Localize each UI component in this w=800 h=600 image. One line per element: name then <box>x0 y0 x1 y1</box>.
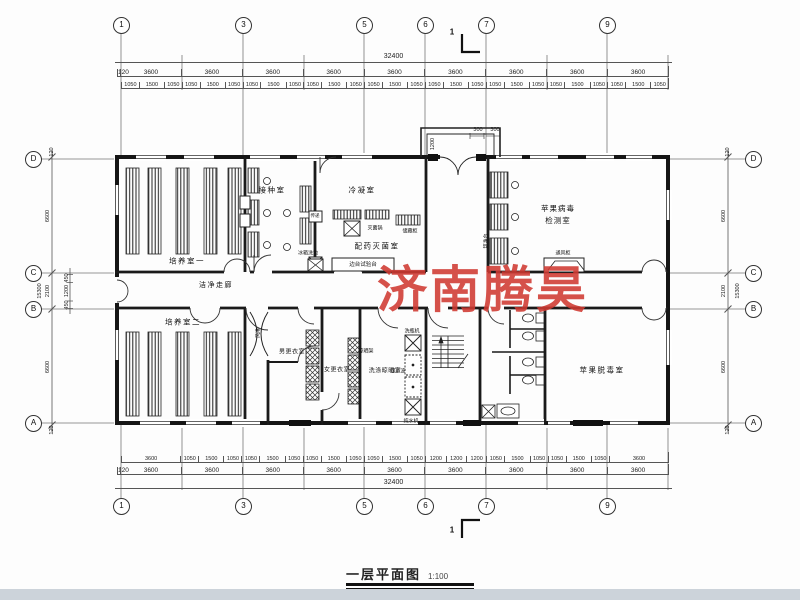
right-dim-ba: 6600 <box>721 361 727 373</box>
equip-label-clean-bench: 超净台 <box>483 233 490 248</box>
dimension-value: 3600 <box>120 69 181 76</box>
dimension-value: 3600 <box>364 69 425 76</box>
stairs <box>432 336 468 368</box>
dimension-value: 1050 <box>286 82 304 88</box>
grid-bubble-left-B: B <box>25 301 42 318</box>
dimension-value: 3600 <box>181 69 242 76</box>
dimension-value: 1050 <box>486 82 504 88</box>
dimension-value: 1050 <box>225 82 243 88</box>
equip-label-air-shower: 风淋 <box>255 328 262 338</box>
dimension-value: 1050 <box>650 82 668 88</box>
dimension-value: 1050 <box>548 456 566 462</box>
dimension-value: 1500 <box>564 82 589 88</box>
grid-bubble-top-1: 1 <box>113 17 130 34</box>
top-overall-dim: 32400 <box>115 52 672 63</box>
right-dim-edge-bottom: 120 <box>725 425 731 434</box>
dimension-value: 1500 <box>443 82 468 88</box>
right-dim-overall: 15300 <box>735 283 741 298</box>
grid-bubble-bottom-1: 1 <box>113 498 130 515</box>
floorplan-page: 1 3 5 6 7 9 1 3 5 6 7 9 D C B A D C B A … <box>0 0 800 600</box>
left-dim-detail-450a: 450 <box>64 273 70 282</box>
dimension-value: 1500 <box>504 456 529 462</box>
dimension-value: 1050 <box>243 82 261 88</box>
dimension-value: 3600 <box>303 69 364 76</box>
grid-bubble-right-C: C <box>745 265 762 282</box>
dimension-value: 3600 <box>364 467 425 474</box>
washing-equipment <box>405 335 421 415</box>
dimension-value: 1500 <box>566 456 591 462</box>
title-underline-thick <box>346 583 474 586</box>
room-label-corridor: 洁净走廊 <box>199 280 233 290</box>
top-bay-dims: 120360036003600360036003600360036003600 <box>117 66 669 77</box>
drawing-title: 一层平面图 <box>346 564 421 583</box>
right-dim-cb: 2100 <box>721 285 727 297</box>
left-dim-detail-1200: 1200 <box>64 285 70 297</box>
dimension-value: 1050 <box>303 82 321 88</box>
grid-bubble-left-C: C <box>25 265 42 282</box>
dimension-value: 1050 <box>346 82 364 88</box>
left-dim-detail-450b: 450 <box>64 300 70 309</box>
dimension-value: 3600 <box>607 467 668 474</box>
dimension-value: 1050 <box>182 82 200 88</box>
dimension-value: 1050 <box>223 456 241 462</box>
room-label-virus-test-line2: 检测室 <box>541 215 575 227</box>
vestibule-depth-dim: 1200 <box>430 138 436 150</box>
room-label-men-changing: 男更衣室 <box>279 347 305 356</box>
dimension-value: 3600 <box>121 456 180 462</box>
room-label-women-changing: 女更衣室 <box>324 365 350 374</box>
dimension-value: 3600 <box>609 456 668 462</box>
grid-bubble-top-7: 7 <box>478 17 495 34</box>
room-label-culture2: 培养室二 <box>165 317 201 328</box>
page-footer-bar <box>0 589 800 600</box>
dimension-value: 1500 <box>139 82 164 88</box>
dimension-value: 1500 <box>382 456 407 462</box>
dimension-value: 1500 <box>321 456 346 462</box>
dimension-value: 1500 <box>382 82 407 88</box>
room-label-detox: 苹果脱毒室 <box>580 365 625 376</box>
equip-label-ultrasonic: 超声波 <box>390 368 405 375</box>
dimension-value: 1050 <box>346 456 364 462</box>
equip-label-cabinet: 储藏柜 <box>402 228 417 235</box>
watermark-text: 济南腾昊 <box>377 250 589 322</box>
dimension-value: 1500 <box>504 82 529 88</box>
grid-bubble-top-5: 5 <box>356 17 373 34</box>
dimension-value: 1050 <box>607 82 625 88</box>
left-dim-dc: 6600 <box>45 210 51 222</box>
grid-bubble-right-A: A <box>745 415 762 432</box>
grid-bubble-bottom-7: 7 <box>478 498 495 515</box>
dimension-value: 3600 <box>485 69 546 76</box>
equip-label-sterilizer: 灭菌锅 <box>367 225 382 232</box>
dimension-value: 1050 <box>486 456 504 462</box>
room-label-culture1: 培养室一 <box>169 256 205 267</box>
dimension-value: 1050 <box>591 456 609 462</box>
dimension-value: 3600 <box>607 69 668 76</box>
dimension-value: 1200 <box>425 456 445 462</box>
dimension-value: 1500 <box>625 82 650 88</box>
dimension-value: 1050 <box>407 456 425 462</box>
dimension-value: 3600 <box>120 467 181 474</box>
dimension-value: 3600 <box>181 467 242 474</box>
dimension-value: 1050 <box>590 82 608 88</box>
grid-bubble-right-D: D <box>745 151 762 168</box>
dimension-value: 1050 <box>303 456 321 462</box>
dimension-value: 1500 <box>198 456 223 462</box>
room-label-condensation: 冷凝室 <box>349 185 376 196</box>
equip-label-pass-window: 传递 <box>311 213 320 219</box>
dimension-value: 3600 <box>485 467 546 474</box>
dimension-value: 1050 <box>547 82 565 88</box>
dimension-value: 1050 <box>364 82 382 88</box>
culture-racks <box>126 168 241 416</box>
room-label-virus-test-line1: 苹果病毒 <box>541 203 575 215</box>
left-dim-overall: 15300 <box>37 283 43 298</box>
dimension-value: 3600 <box>424 69 485 76</box>
grid-bubble-right-B: B <box>745 301 762 318</box>
top-detail-dims: 1050150010501050150010501050150010501050… <box>121 78 669 89</box>
grid-bubble-top-9: 9 <box>599 17 616 34</box>
equip-label-bottle-washer: 洗瓶机 <box>404 328 419 335</box>
right-dim-edge-top: 120 <box>725 147 731 156</box>
right-dim-dc: 6600 <box>721 210 727 222</box>
dimension-value: 1500 <box>259 456 284 462</box>
left-dim-cb: 2100 <box>45 285 51 297</box>
grid-bubble-left-D: D <box>25 151 42 168</box>
section-mark-label-bottom: 1 <box>450 526 454 535</box>
dimension-value: 1050 <box>529 82 547 88</box>
dimension-value: 1500 <box>260 82 285 88</box>
equip-label-water-purifier: 纯水机 <box>403 418 418 425</box>
left-dim-edge-bottom: 120 <box>49 425 55 434</box>
dimension-value: 3600 <box>242 467 303 474</box>
equip-label-sink: 洗池 <box>308 250 318 257</box>
dimension-value: 1050 <box>180 456 198 462</box>
bottom-overall-dim: 32400 <box>115 478 672 489</box>
grid-bubble-bottom-9: 9 <box>599 498 616 515</box>
grid-bubble-bottom-6: 6 <box>417 498 434 515</box>
drawing-title-block: 一层平面图 1:100 <box>346 564 448 583</box>
grid-bubble-top-6: 6 <box>417 17 434 34</box>
left-dim-edge-top: 120 <box>49 147 55 156</box>
room-label-inoculation: 接种室 <box>259 185 286 196</box>
grid-bubble-top-3: 3 <box>235 17 252 34</box>
dimension-value: 3600 <box>546 69 607 76</box>
room-label-virus-test: 苹果病毒 检测室 <box>541 203 575 227</box>
equip-label-drying-rack: 晾晒架 <box>358 348 373 355</box>
dimension-value: 1050 <box>364 456 382 462</box>
dimension-value: 1050 <box>164 82 182 88</box>
bottom-detail-dims: 3600105015001050105015001050105015001050… <box>121 452 669 463</box>
dimension-value: 1500 <box>200 82 225 88</box>
dimension-value: 1200 <box>446 456 466 462</box>
dimension-value: 3600 <box>303 467 364 474</box>
dimension-value: 1050 <box>285 456 303 462</box>
dimension-value: 1050 <box>121 82 139 88</box>
section-mark-label-top: 1 <box>450 28 454 37</box>
vestibule-step2-dim: 300 <box>490 127 499 133</box>
dimension-value: 1050 <box>468 82 486 88</box>
grid-bubble-bottom-3: 3 <box>235 498 252 515</box>
dimension-value: 1200 <box>466 456 486 462</box>
equip-label-fridge: 冰箱 <box>298 250 308 257</box>
equip-label-side-bench: 边台试验台 <box>349 260 377 268</box>
dimension-value: 3600 <box>546 467 607 474</box>
drawing-scale: 1:100 <box>428 572 448 581</box>
grid-bubble-bottom-5: 5 <box>356 498 373 515</box>
dimension-value: 1050 <box>241 456 259 462</box>
vestibule-step1-dim: 300 <box>473 127 482 133</box>
dimension-value: 3600 <box>242 69 303 76</box>
dimension-value: 1050 <box>530 456 548 462</box>
left-dim-ba: 6600 <box>45 361 51 373</box>
bottom-bay-dims: 120360036003600360036003600360036003600 <box>117 464 669 475</box>
dimension-value: 1500 <box>321 82 346 88</box>
dimension-value: 3600 <box>424 467 485 474</box>
dimension-value: 1050 <box>407 82 425 88</box>
grid-bubble-left-A: A <box>25 415 42 432</box>
dimension-value: 1050 <box>425 82 443 88</box>
